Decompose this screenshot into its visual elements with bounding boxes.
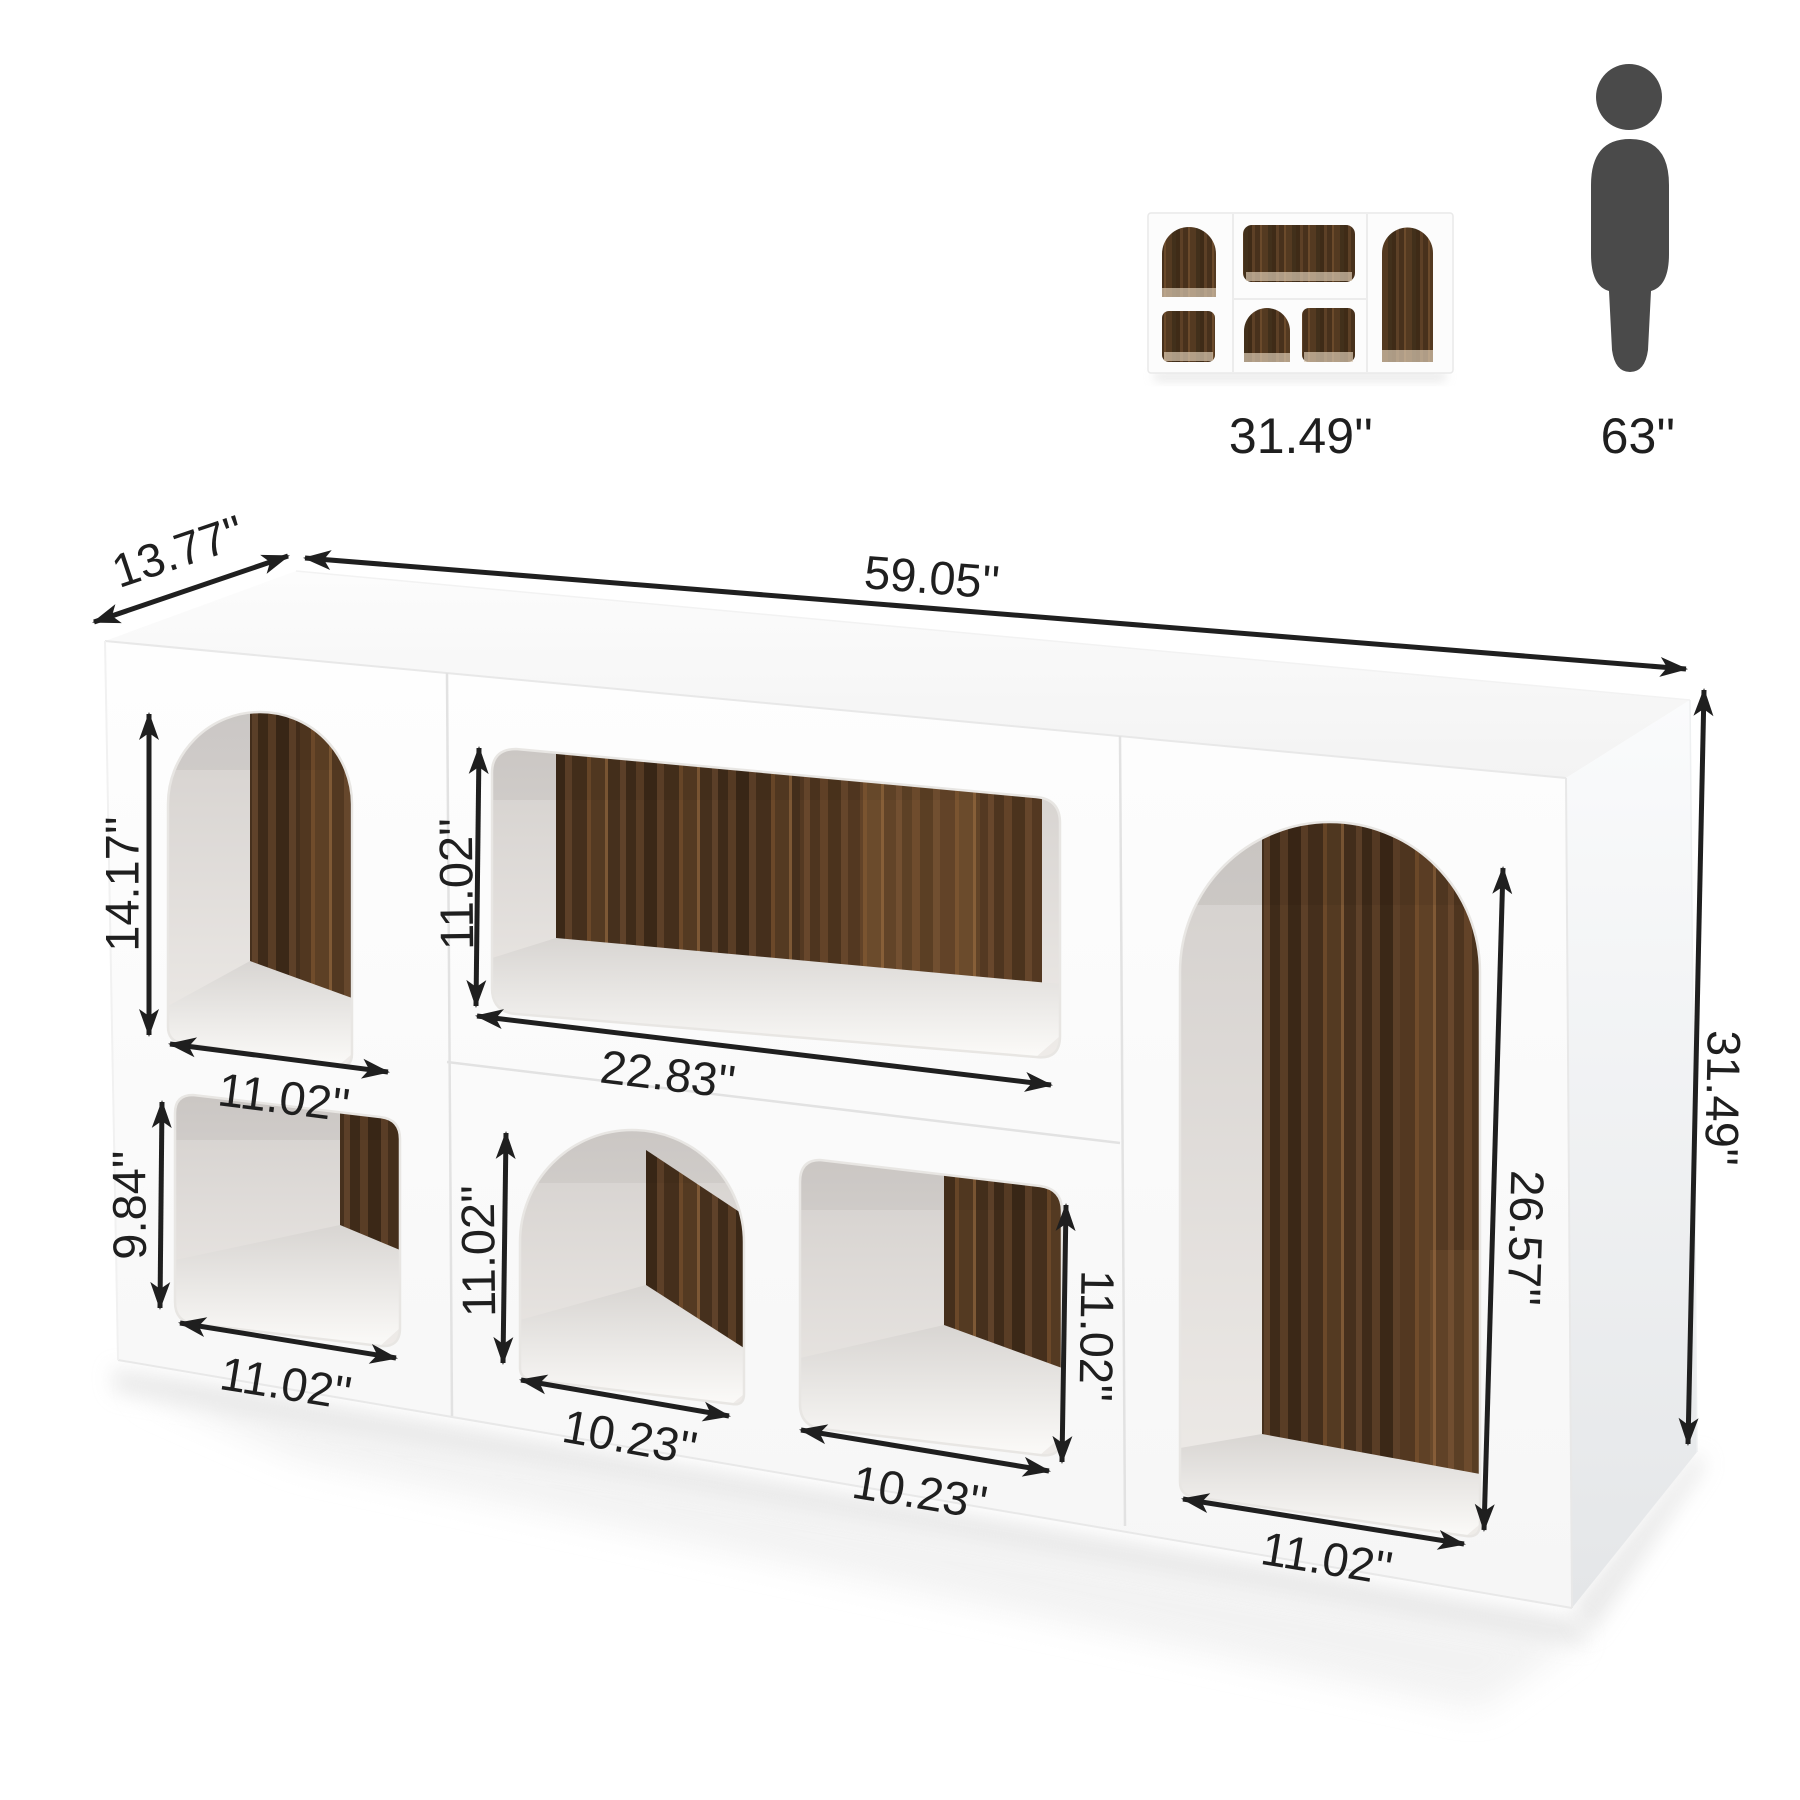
width-label: 59.05'' [862,545,1001,609]
thumbnail-width-label: 31.49'' [1229,408,1373,464]
thumb-floor [1162,288,1216,297]
center-shelf-height-label: 11.02'' [429,818,483,951]
left-arch-height-label: 14.17'' [96,816,149,952]
front-view-thumbnail: 31.49'' [1148,213,1453,464]
thumb-floor [1164,352,1213,361]
thumb-floor [1244,353,1290,362]
left-cubby-height-label: 9.84'' [102,1150,156,1260]
person-height-label: 63'' [1601,408,1676,464]
thumb-floor [1246,272,1352,281]
bottom-cubby-height-label: 11.02'' [1069,1270,1124,1403]
opening-center-bottom-cubby [795,1155,1067,1465]
thumb-floor [1382,350,1433,362]
thumb-opening-arch-right [1382,228,1433,363]
overall-height-label: 31.49'' [1695,1030,1751,1167]
bottom-arch-height-label: 11.02'' [451,1185,506,1318]
left-cubby-height-arrow [160,1102,162,1308]
right-arch-height-label: 26.57'' [1498,1170,1555,1307]
opening-left-bottom-cubby [170,1090,405,1355]
person-head [1596,64,1662,130]
thumb-floor [1304,352,1353,362]
opening-right-arch [1175,815,1485,1545]
cabinet-side-face [1566,700,1697,1608]
opening-center-bottom-arch [515,1125,750,1415]
product-dimension-diagram: 13.77'' 59.05'' 31.49'' 26.57'' 14.17'' … [0,0,1800,1800]
thumb-opening-arch-left [1162,227,1216,297]
depth-label: 13.77'' [105,504,250,597]
wood-lighter-plank [1430,1250,1480,1480]
opening-left-top-arch [160,690,360,1080]
person-icon: 63'' [1591,64,1675,464]
person-body [1591,139,1669,372]
